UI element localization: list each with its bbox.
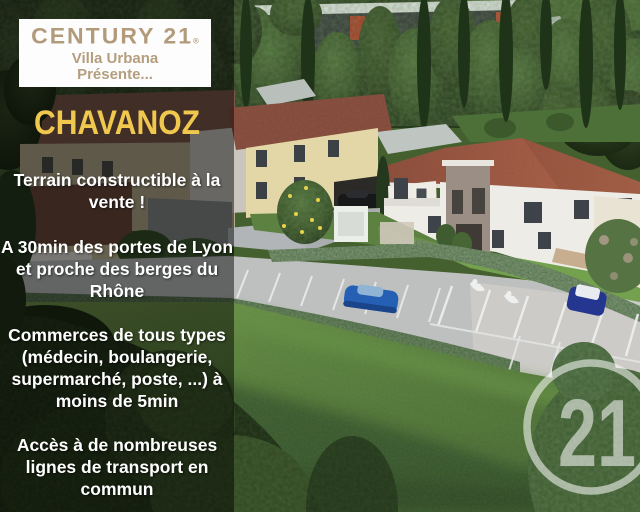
svg-text:21: 21	[558, 380, 636, 487]
